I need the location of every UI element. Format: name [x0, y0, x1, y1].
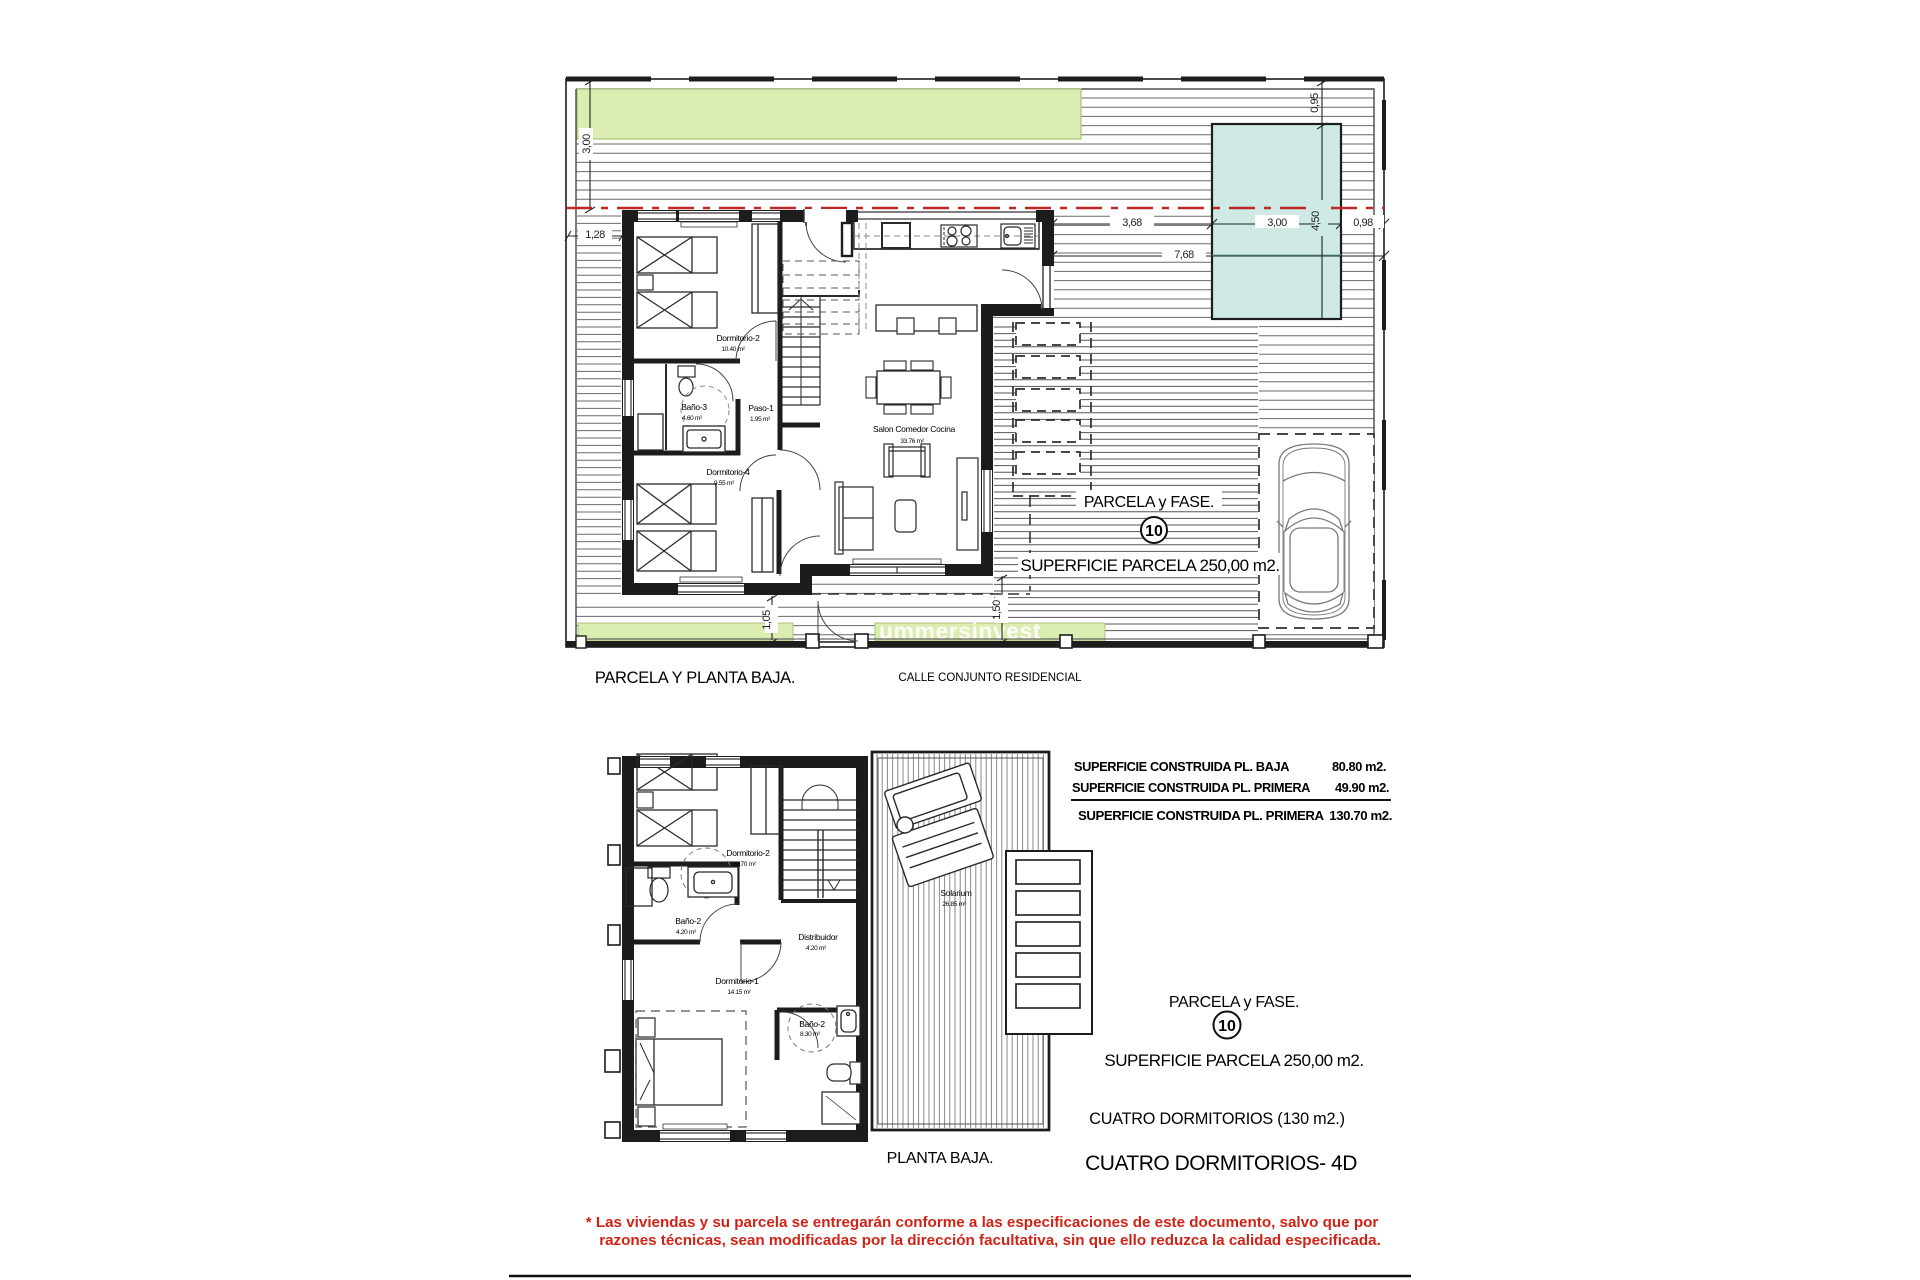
svg-text:0,98: 0,98	[1353, 217, 1373, 229]
svg-text:Dormitorio-2: Dormitorio-2	[726, 848, 770, 858]
svg-text:9.55 m²: 9.55 m²	[714, 480, 735, 487]
svg-text:1,28: 1,28	[585, 229, 605, 241]
svg-text:80.80 m2.: 80.80 m2.	[1332, 759, 1386, 774]
svg-text:Dormitorio-2: Dormitorio-2	[716, 333, 760, 343]
svg-text:Dormitorio-1: Dormitorio-1	[715, 976, 759, 986]
svg-text:Baño-3: Baño-3	[681, 402, 707, 412]
svg-text:4.20 m²: 4.20 m²	[676, 929, 697, 936]
svg-text:4,50: 4,50	[1310, 211, 1322, 231]
svg-text:130.70 m2.: 130.70 m2.	[1329, 808, 1392, 823]
svg-text:4.60 m²: 4.60 m²	[682, 415, 703, 422]
svg-text:Baño-2: Baño-2	[675, 916, 701, 926]
svg-text:7,68: 7,68	[1174, 249, 1194, 261]
svg-text:14.15 m²: 14.15 m²	[727, 989, 751, 996]
svg-text:10.70 m²: 10.70 m²	[732, 861, 756, 868]
svg-text:razones técnicas, sean modific: razones técnicas, sean modificadas por l…	[599, 1232, 1381, 1249]
svg-text:33.76 m²: 33.76 m²	[900, 438, 924, 445]
svg-text:3,00: 3,00	[1267, 217, 1287, 229]
svg-text:PARCELA Y PLANTA BAJA.: PARCELA Y PLANTA BAJA.	[595, 669, 795, 687]
svg-text:PARCELA y FASE.: PARCELA y FASE.	[1084, 494, 1214, 511]
svg-text:0,95: 0,95	[1309, 93, 1321, 113]
svg-text:10.40 m²: 10.40 m²	[721, 346, 745, 353]
svg-text:CALLE CONJUNTO RESIDENCIAL: CALLE CONJUNTO RESIDENCIAL	[898, 672, 1082, 684]
svg-text:Solarium: Solarium	[940, 888, 971, 898]
svg-text:SUPERFICIE CONSTRUIDA PL. PRIM: SUPERFICIE CONSTRUIDA PL. PRIMERA	[1078, 808, 1325, 823]
svg-text:Paso-1: Paso-1	[748, 403, 774, 413]
svg-text:1.95 m²: 1.95 m²	[750, 416, 771, 423]
svg-text:Dormitorio-4: Dormitorio-4	[706, 467, 750, 477]
svg-text:10: 10	[1145, 523, 1163, 540]
svg-text:8.30 m²: 8.30 m²	[800, 1031, 821, 1038]
svg-text:Salon Comedor Cocina: Salon Comedor Cocina	[873, 424, 955, 434]
svg-text:CUATRO DORMITORIOS- 4D: CUATRO DORMITORIOS- 4D	[1085, 1152, 1357, 1175]
svg-text:1,50: 1,50	[991, 600, 1003, 620]
svg-text:SUPERFICIE CONSTRUIDA PL. BAJA: SUPERFICIE CONSTRUIDA PL. BAJA	[1074, 759, 1289, 774]
svg-text:SUPERFICIE PARCELA 250,00 m2.: SUPERFICIE PARCELA 250,00 m2.	[1020, 556, 1279, 575]
svg-text:Baño-2: Baño-2	[799, 1019, 825, 1029]
svg-text:* Las viviendas y su parcela s: * Las viviendas y su parcela se entregar…	[586, 1214, 1379, 1231]
svg-text:49.90 m2.: 49.90 m2.	[1335, 780, 1389, 795]
svg-text:PARCELA y FASE.: PARCELA y FASE.	[1169, 994, 1299, 1011]
svg-text:3,68: 3,68	[1122, 217, 1142, 229]
svg-text:26,85 m²: 26,85 m²	[942, 901, 966, 908]
svg-text:CUATRO DORMITORIOS (130 m2.): CUATRO DORMITORIOS (130 m2.)	[1089, 1110, 1345, 1128]
svg-text:PLANTA BAJA.: PLANTA BAJA.	[887, 1150, 994, 1167]
svg-text:Distribuidor: Distribuidor	[798, 932, 838, 942]
svg-text:SUPERFICIE PARCELA 250,00 m2.: SUPERFICIE PARCELA 250,00 m2.	[1104, 1051, 1363, 1070]
svg-text:SUPERFICIE CONSTRUIDA PL. PRIM: SUPERFICIE CONSTRUIDA PL. PRIMERA	[1072, 780, 1310, 795]
svg-text:4.20 m²: 4.20 m²	[806, 945, 827, 952]
svg-text:10: 10	[1218, 1018, 1236, 1035]
svg-text:1,05: 1,05	[761, 610, 773, 630]
svg-text:ummersinvest: ummersinvest	[879, 618, 1041, 644]
svg-text:3,00: 3,00	[581, 134, 593, 154]
